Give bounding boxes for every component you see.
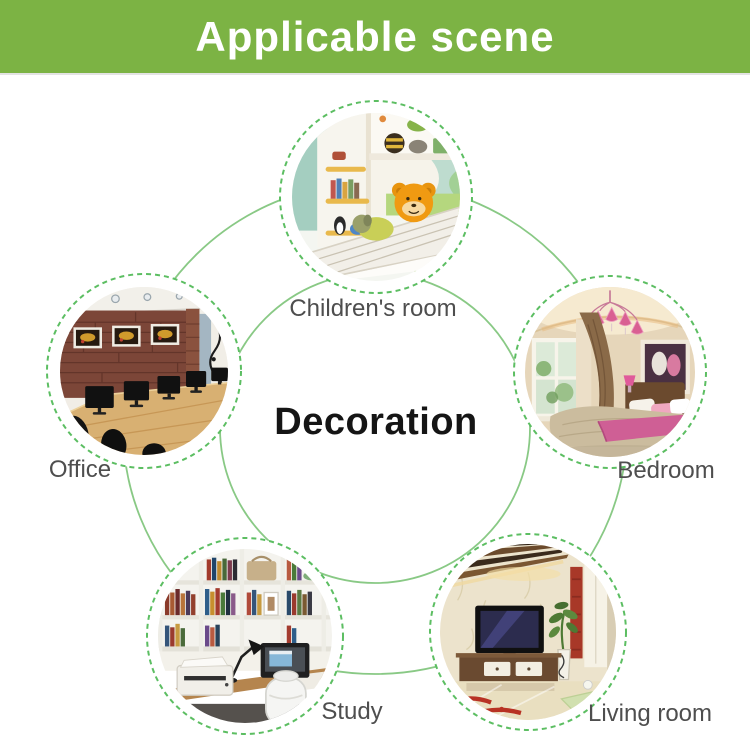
study-node bbox=[147, 538, 343, 734]
bedroom-node bbox=[514, 276, 706, 468]
bedroom-label: Bedroom bbox=[617, 458, 714, 484]
applicable-scene-page: Applicable scene bbox=[0, 0, 750, 750]
scene-diagram bbox=[0, 0, 750, 750]
office-label: Office bbox=[49, 457, 111, 483]
children-room-photo bbox=[292, 113, 460, 281]
office-node bbox=[47, 274, 241, 468]
center-title: Decoration bbox=[274, 401, 477, 444]
children-room-label: Children's room bbox=[289, 296, 456, 322]
study-label: Study bbox=[321, 699, 382, 725]
children-room-node bbox=[280, 101, 472, 293]
living-room-label: Living room bbox=[588, 701, 712, 727]
